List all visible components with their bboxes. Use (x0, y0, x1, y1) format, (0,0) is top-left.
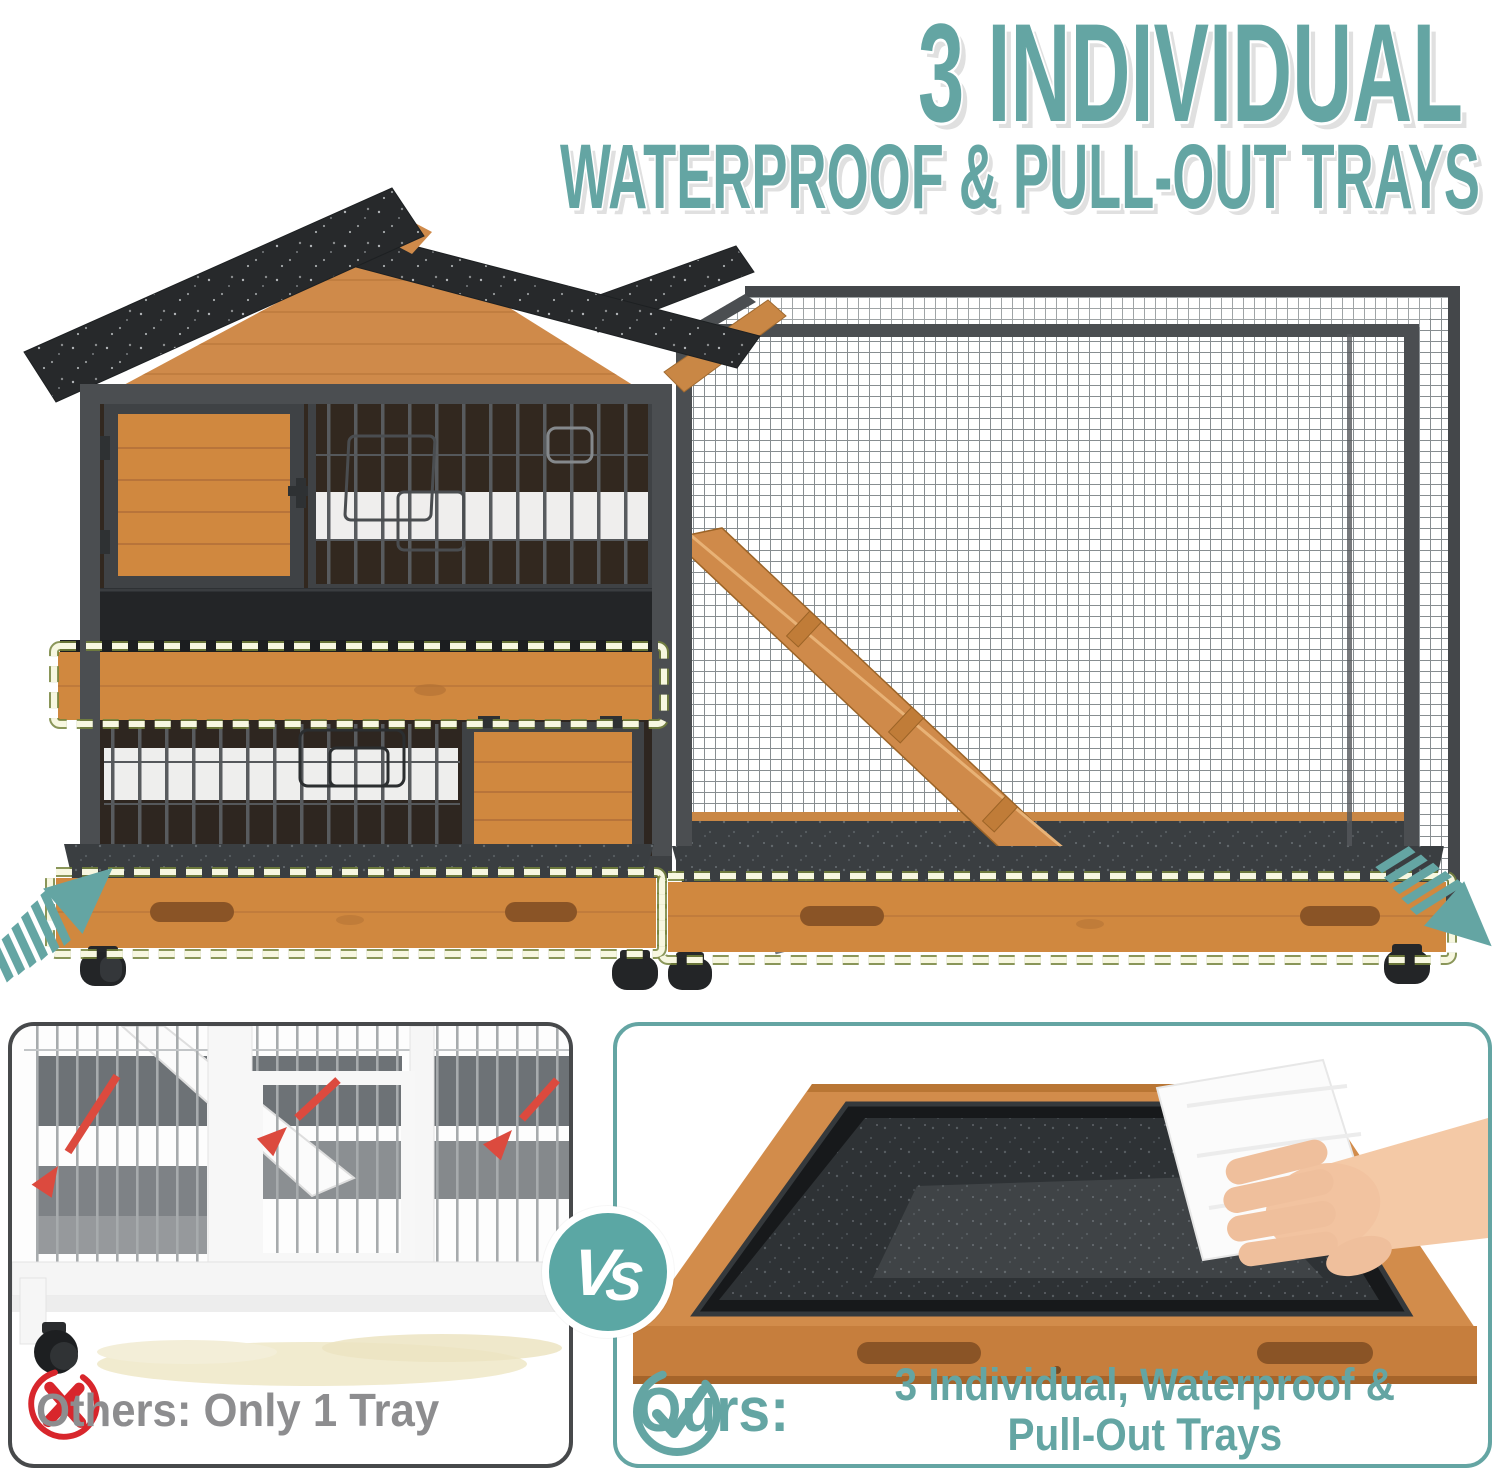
middle-tray (58, 640, 660, 720)
headline-line2: WATERPROOF & PULL-OUT TRAYS (560, 126, 1480, 228)
ours-caption: Ours: 3 Individual, Waterproof & Pull-Ou… (627, 1362, 1482, 1458)
bottom-tray-left (56, 844, 656, 948)
ours-caption-desc: 3 Individual, Waterproof & Pull-Out Tray… (842, 1360, 1448, 1461)
bottom-tray-right (668, 846, 1446, 952)
vs-letter-s: S (603, 1255, 645, 1309)
upper-mesh-door (312, 400, 652, 588)
gray-hutch (12, 1026, 569, 1344)
shelf (84, 588, 668, 648)
vs-badge-text: V S (570, 1239, 647, 1305)
vs-badge: V S (542, 1206, 674, 1338)
others-panel: Others: Only 1 Tray (8, 1022, 573, 1468)
others-caption-text: Others: Only 1 Tray (36, 1383, 439, 1437)
ours-caption-label: Ours: (637, 1375, 789, 1446)
hutch-product-photo (0, 150, 1500, 1020)
others-caption: Others: Only 1 Tray (22, 1362, 563, 1458)
upper-wood-door (96, 400, 314, 590)
ours-caption-desc-line1: 3 Individual, Waterproof & (895, 1360, 1395, 1410)
ours-caption-desc-line2: Pull-Out Trays (1008, 1410, 1283, 1460)
ours-panel: Ours: 3 Individual, Waterproof & Pull-Ou… (613, 1022, 1492, 1468)
lower-mesh (104, 724, 460, 856)
headline: 3 INDIVIDUAL 3 INDIVIDUAL WATERPROOF & P… (0, 0, 1500, 240)
lower-wood-door (462, 716, 644, 858)
